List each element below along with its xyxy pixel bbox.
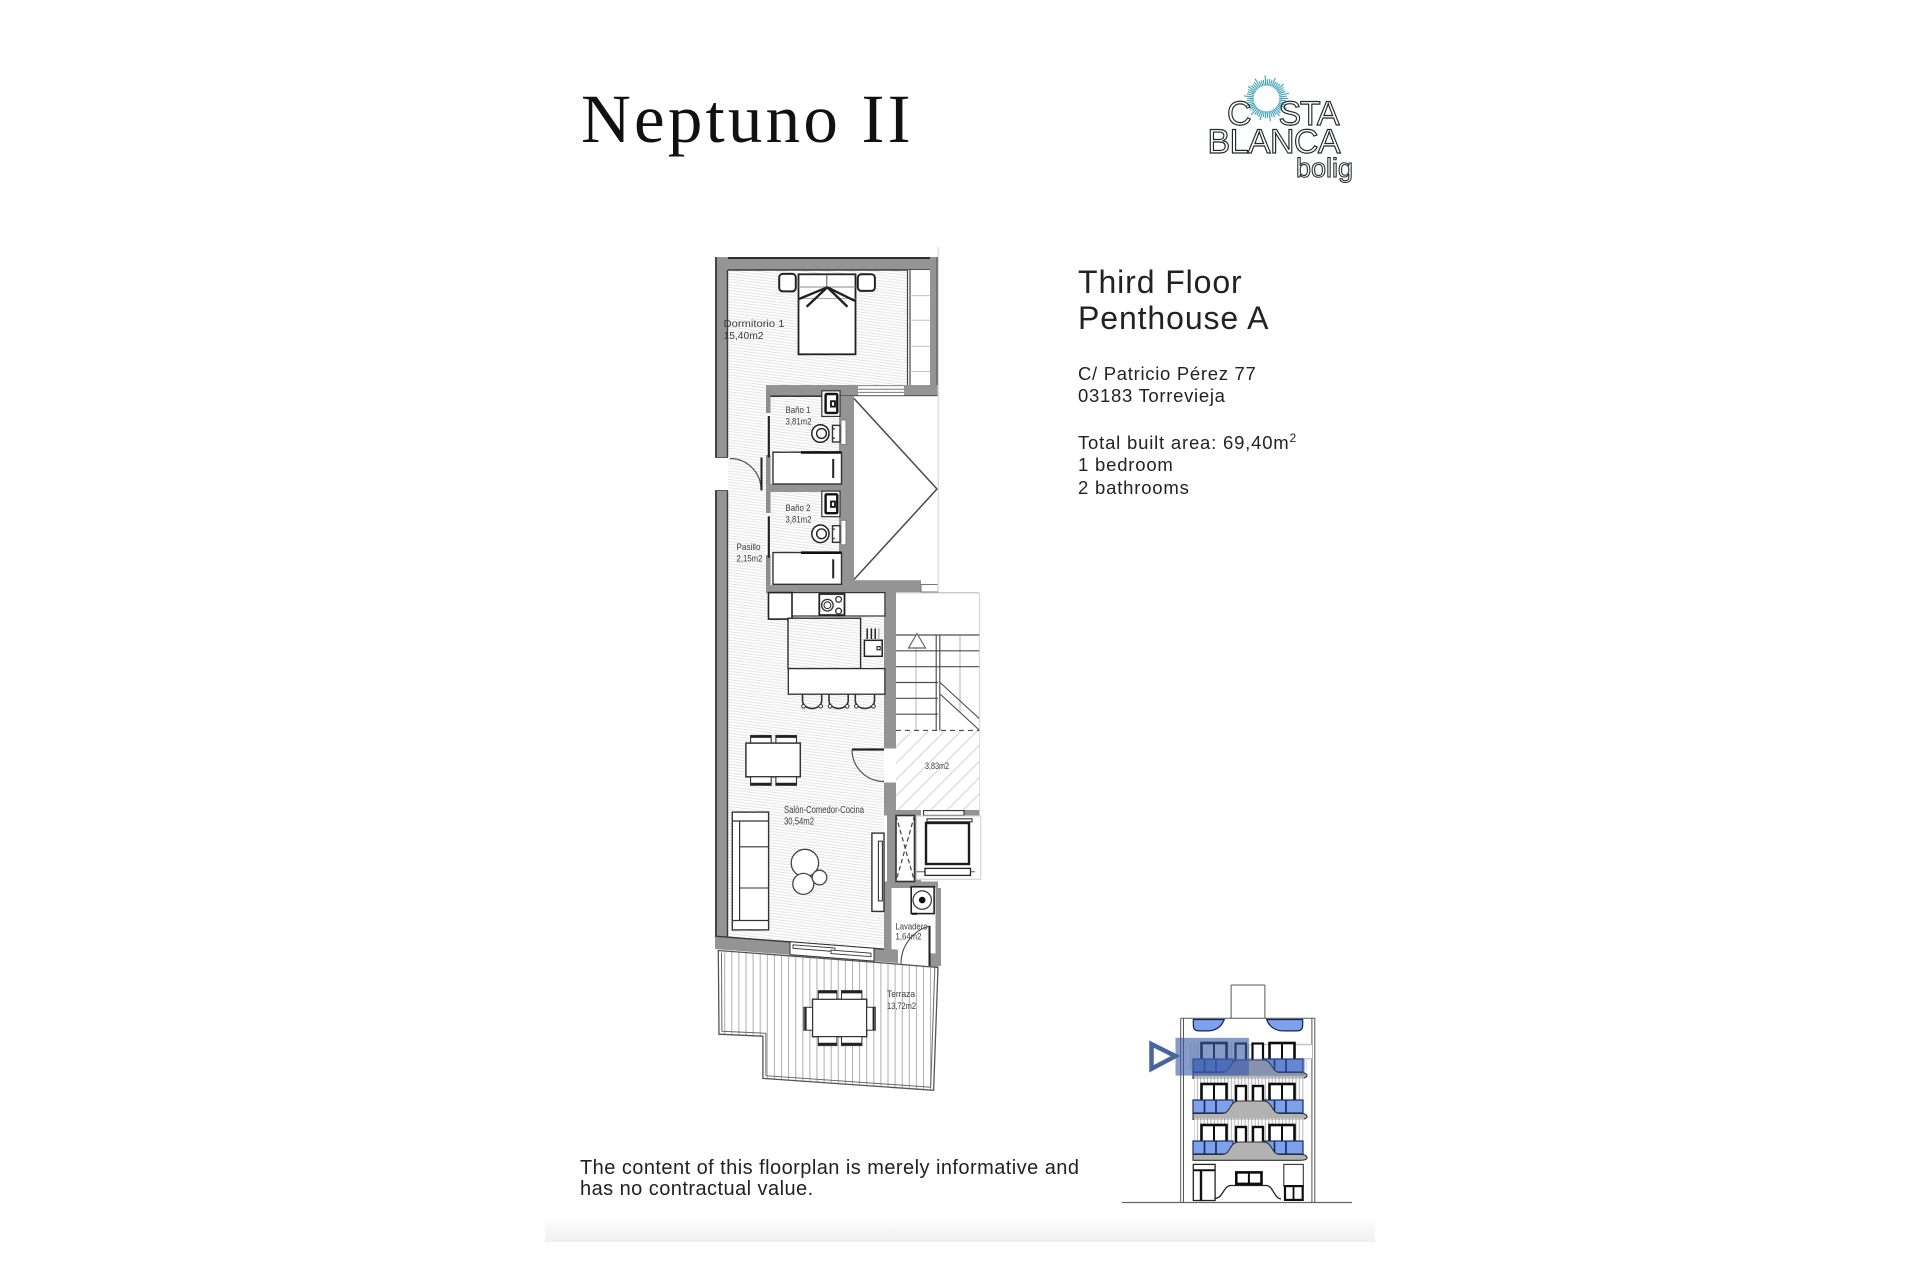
svg-text:3,83m2: 3,83m2 (925, 761, 949, 772)
svg-text:2,15m2: 2,15m2 (737, 554, 763, 565)
svg-text:bolig: bolig (1296, 153, 1353, 183)
svg-text:Terraza: Terraza (887, 989, 916, 1000)
svg-text:15,40m2: 15,40m2 (724, 331, 764, 342)
svg-text:13,72m2: 13,72m2 (887, 1001, 916, 1012)
svg-text:Baño 2: Baño 2 (786, 503, 811, 514)
svg-text:3,81m2: 3,81m2 (786, 515, 812, 526)
svg-text:3,81m2: 3,81m2 (786, 417, 812, 428)
svg-text:Dormitorio 1: Dormitorio 1 (724, 319, 785, 330)
svg-text:Salón-Comedor-Cocina: Salón-Comedor-Cocina (784, 805, 864, 816)
svg-text:Pasillo: Pasillo (737, 542, 761, 553)
svg-text:30,54m2: 30,54m2 (784, 817, 814, 828)
svg-text:Baño 1: Baño 1 (786, 405, 811, 416)
